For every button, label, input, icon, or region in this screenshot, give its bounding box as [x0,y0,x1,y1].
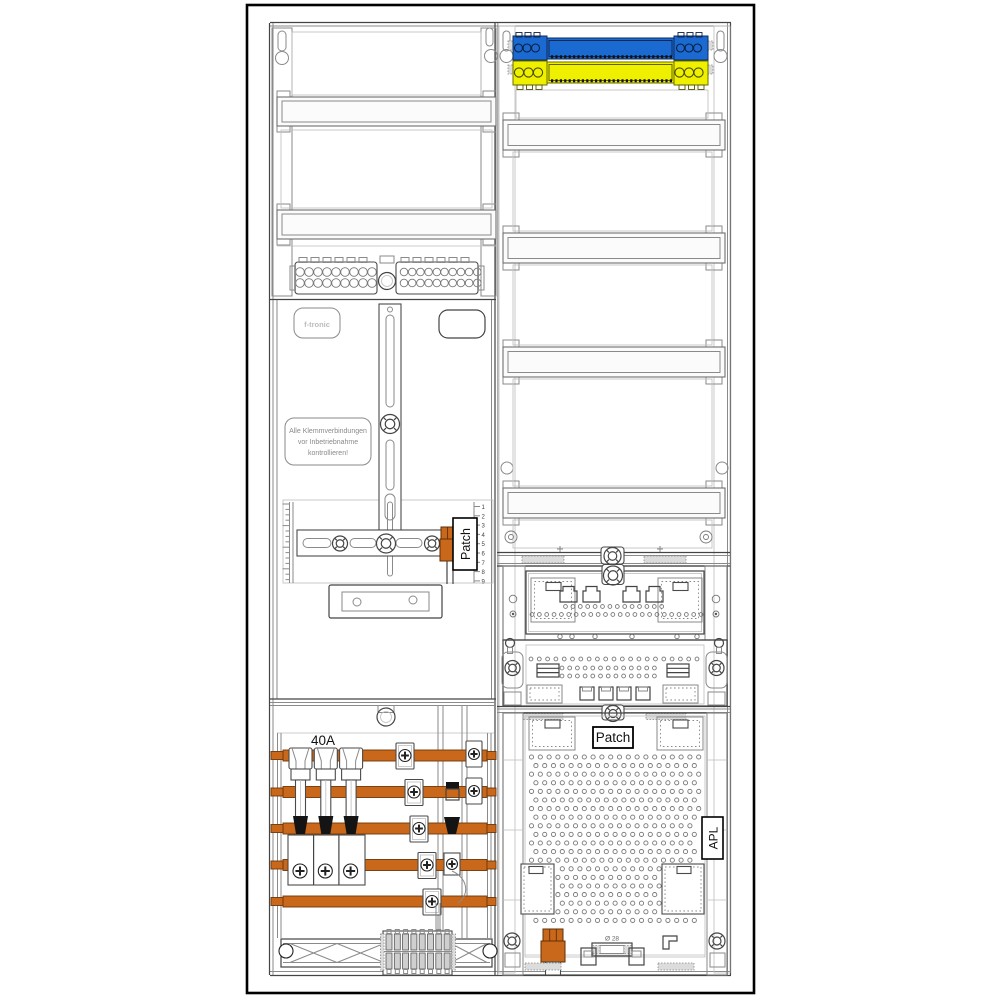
patch-label-apl: Patch [596,730,631,745]
warning-line-2: vor Inbetriebnahme [298,439,358,446]
diameter-note-label: Ø 28 [605,936,619,943]
apl-label: APL [707,826,721,849]
warning-line-3: kontrollieren! [308,450,348,457]
meter-cabinet-drawing: 123456789 f-tronic Alle Klemmverbindunge… [0,0,1000,1000]
cabinet-diagram: 123456789 f-tronic Alle Klemmverbindunge… [0,0,1000,1000]
breaker-rating-label: 40A [311,733,335,748]
brand-label: f-tronic [304,320,330,329]
patch-label-meter: Patch [459,528,473,560]
warning-line-1: Alle Klemmverbindungen [289,428,367,435]
